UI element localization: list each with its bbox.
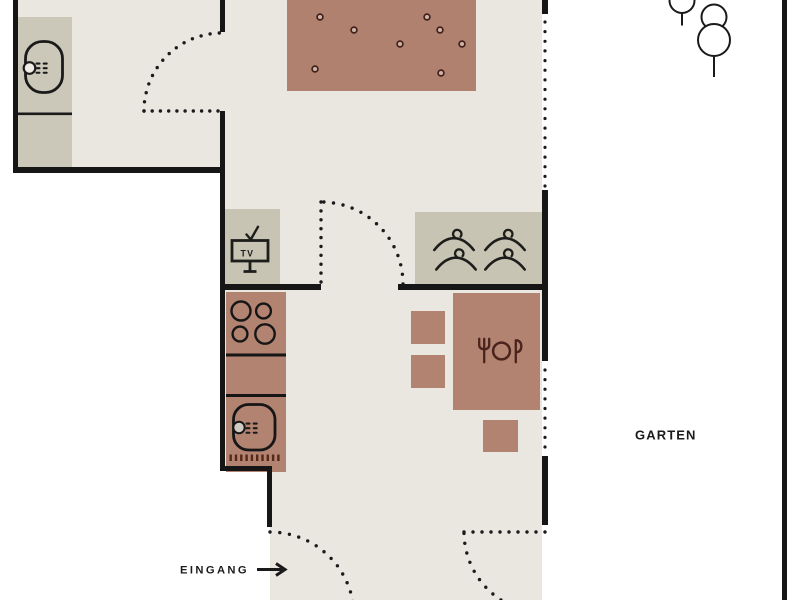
svg-text:GARTEN: GARTEN [635,428,697,443]
svg-text:TV: TV [241,249,255,259]
svg-text:EINGANG: EINGANG [180,565,249,577]
